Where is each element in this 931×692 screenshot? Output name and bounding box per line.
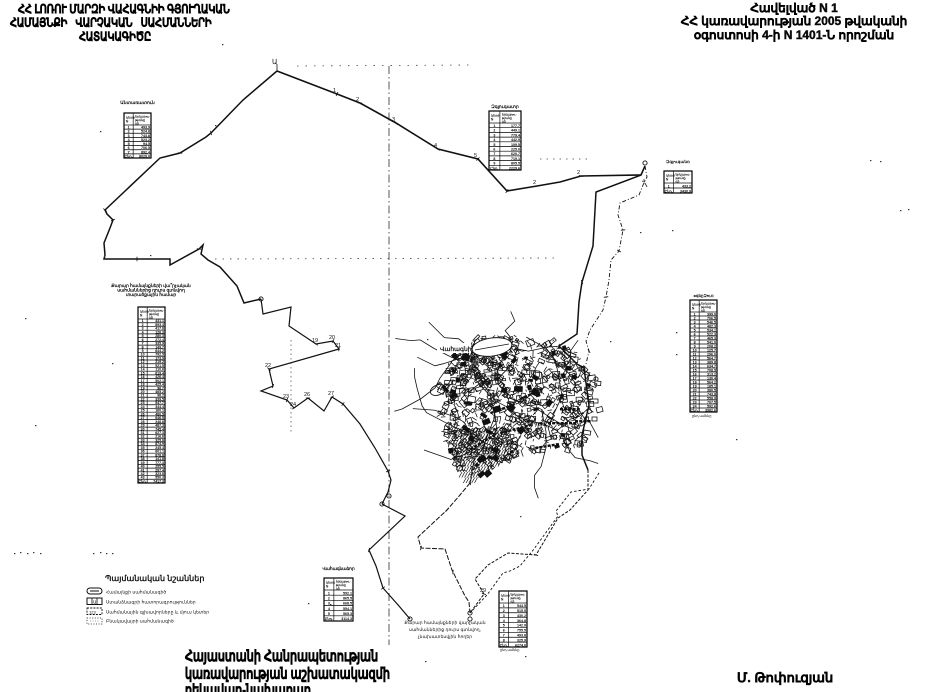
svg-text:ընդ.ամենը: ընդ.ամենը (692, 414, 711, 418)
svg-text:20: 20 (329, 335, 335, 341)
svg-text:Ընդ.: Ընդ. (500, 642, 508, 647)
svg-text:(մ): (մ) (135, 122, 139, 126)
svg-text:2229.6: 2229.6 (509, 166, 520, 170)
svg-text:1: 1 (333, 88, 336, 94)
svg-text:325.9: 325.9 (517, 638, 526, 642)
svg-text:(մ): (մ) (511, 600, 515, 604)
svg-text:չնախատեսվյին հողեր: չնախատեսվյին հողեր (418, 634, 472, 640)
svg-text:493.8: 493.8 (517, 633, 526, 637)
svg-text:449.1: 449.1 (511, 129, 520, 133)
svg-text:Պայմանական նշաններ: Պայմանական նշաններ (105, 574, 204, 583)
svg-text:1: 1 (668, 184, 670, 188)
svg-text:1: 1 (503, 604, 505, 608)
svg-text:620.7: 620.7 (511, 152, 520, 156)
svg-text:(մ): (մ) (701, 309, 705, 313)
svg-text:Ընդ.: Ընդ. (665, 188, 673, 193)
svg-text:Ընդ.: Ընդ. (139, 478, 147, 483)
svg-text:21: 21 (335, 343, 341, 349)
svg-text:4: 4 (328, 607, 330, 611)
svg-text:Վահագնի: Վահագնի (440, 345, 472, 353)
svg-text:554.1: 554.1 (343, 607, 352, 611)
svg-text:Բնակավայրի սահմանագիծ: Բնակավայրի սահմանագիծ (106, 619, 174, 625)
svg-text:27: 27 (328, 391, 334, 397)
svg-text:ընդ.ամենը: ընդ.ամենը (500, 648, 519, 652)
svg-text:3982.6: 3982.6 (705, 408, 716, 412)
svg-text:668.5: 668.5 (343, 602, 352, 606)
svg-text:24: 24 (290, 402, 296, 408)
svg-text:26: 26 (304, 392, 310, 398)
svg-text:544.5: 544.5 (517, 604, 526, 608)
svg-text:2: 2 (533, 180, 536, 186)
svg-text:4: 4 (434, 143, 437, 149)
svg-text:Ընդ.: Ընդ. (124, 153, 132, 158)
svg-text:Զգլուգանռ: Զգլուգանռ (666, 159, 690, 164)
svg-text:433.2: 433.2 (682, 184, 691, 188)
svg-text:22: 22 (265, 363, 271, 369)
svg-text:Սահմանային գլխավորները և մյուս: Սահմանային գլխավորները և մյուս կետեր (106, 610, 209, 616)
svg-text:719.1: 719.1 (511, 157, 520, 161)
svg-text:7417.3: 7417.3 (153, 479, 164, 483)
svg-text:N: N (501, 598, 504, 602)
svg-text:(մ): (մ) (502, 120, 506, 124)
svg-text:865.5: 865.5 (343, 597, 352, 601)
svg-text:4: 4 (642, 179, 645, 185)
svg-text:N: N (692, 307, 695, 311)
svg-text:7: 7 (493, 152, 495, 156)
svg-text:5: 5 (493, 143, 495, 147)
svg-text:225.0: 225.0 (511, 148, 520, 152)
svg-text:592.1: 592.1 (343, 591, 352, 595)
svg-text:Վահագնաձոր: Վահագնաձոր (322, 566, 354, 571)
svg-text:Ա: Ա (93, 600, 97, 605)
svg-text:442.9: 442.9 (511, 138, 520, 142)
svg-text:N: N (126, 120, 129, 124)
svg-text:5: 5 (328, 612, 330, 616)
svg-text:8: 8 (503, 638, 505, 642)
svg-text:N: N (491, 118, 494, 122)
svg-text:N: N (666, 178, 669, 182)
svg-text:N: N (140, 314, 143, 318)
svg-text:142.9: 142.9 (517, 624, 526, 628)
svg-text:123: 123 (89, 610, 96, 615)
svg-text:2: 2 (503, 609, 505, 613)
svg-text:Ընդ.: Ընդ. (690, 407, 698, 412)
svg-text:6: 6 (493, 148, 495, 152)
svg-text:3: 3 (392, 117, 395, 123)
svg-text:779.4: 779.4 (511, 133, 520, 137)
svg-text:4: 4 (503, 619, 505, 623)
svg-text:19: 19 (312, 338, 318, 344)
svg-text:6274.0: 6274.0 (515, 643, 526, 647)
svg-text:9: 9 (493, 162, 495, 166)
svg-text:7: 7 (503, 633, 505, 637)
svg-text:(մ): (մ) (336, 587, 340, 591)
svg-text:տարածքային համար: տարածքային համար (126, 292, 177, 297)
svg-text:755.5: 755.5 (517, 629, 526, 633)
svg-text:3114.3: 3114.3 (341, 617, 352, 621)
svg-text:2: 2 (356, 97, 359, 103)
svg-text:3: 3 (328, 602, 330, 606)
svg-text:364.8: 364.8 (517, 619, 526, 623)
svg-text:5: 5 (503, 624, 505, 628)
svg-text:2: 2 (493, 129, 495, 133)
svg-text:Անտառատուն: Անտառատուն (120, 100, 155, 105)
svg-text:8029.0: 8029.0 (139, 154, 150, 158)
svg-text:430.2: 430.2 (517, 614, 526, 618)
svg-text:սահմաններից դուրս գտնվող,: սահմաններից դուրս գտնվող, (409, 627, 481, 633)
svg-text:Ընդ.: Ընդ. (325, 616, 333, 621)
svg-text:805.5: 805.5 (511, 162, 520, 166)
svg-text:23: 23 (283, 394, 289, 400)
svg-text:109.5: 109.5 (511, 143, 520, 147)
svg-text:2: 2 (328, 597, 330, 601)
svg-text:(մ): (մ) (676, 180, 680, 184)
svg-text:29: 29 (480, 588, 486, 594)
svg-text:Ընդ.: Ընդ. (490, 165, 498, 170)
svg-text:2: 2 (577, 170, 580, 176)
svg-text:565.3: 565.3 (343, 612, 352, 616)
svg-text:N: N (326, 585, 329, 589)
svg-text:8: 8 (493, 157, 495, 161)
svg-text:1: 1 (493, 124, 495, 128)
svg-text:3430.9: 3430.9 (680, 189, 691, 193)
svg-text:515.5: 515.5 (517, 609, 526, 613)
svg-text:177.7: 177.7 (511, 124, 520, 128)
svg-text:Համայնքի սահմանագիծ: Համայնքի սահմանագիծ (106, 590, 166, 596)
svg-text:Ա: Ա (272, 58, 277, 66)
svg-text:Ստանձնագրի հատորագրություններ: Ստանձնագրի հատորագրություններ (106, 600, 196, 606)
svg-text:1: 1 (328, 591, 330, 595)
svg-text:Զգլուգաւոր: Զգլուգաւոր (491, 104, 519, 110)
svg-text:Քարար համայնքների վարչական: Քարար համայնքների վարչական (404, 620, 485, 626)
svg-text:5: 5 (474, 153, 477, 159)
svg-text:3: 3 (493, 133, 495, 137)
svg-text:(մ): (մ) (149, 316, 153, 320)
svg-text:օգեըԶուռ: օգեըԶուռ (693, 293, 714, 298)
svg-text:3: 3 (503, 614, 505, 618)
svg-text:4: 4 (493, 138, 495, 142)
svg-text:6: 6 (503, 629, 505, 633)
